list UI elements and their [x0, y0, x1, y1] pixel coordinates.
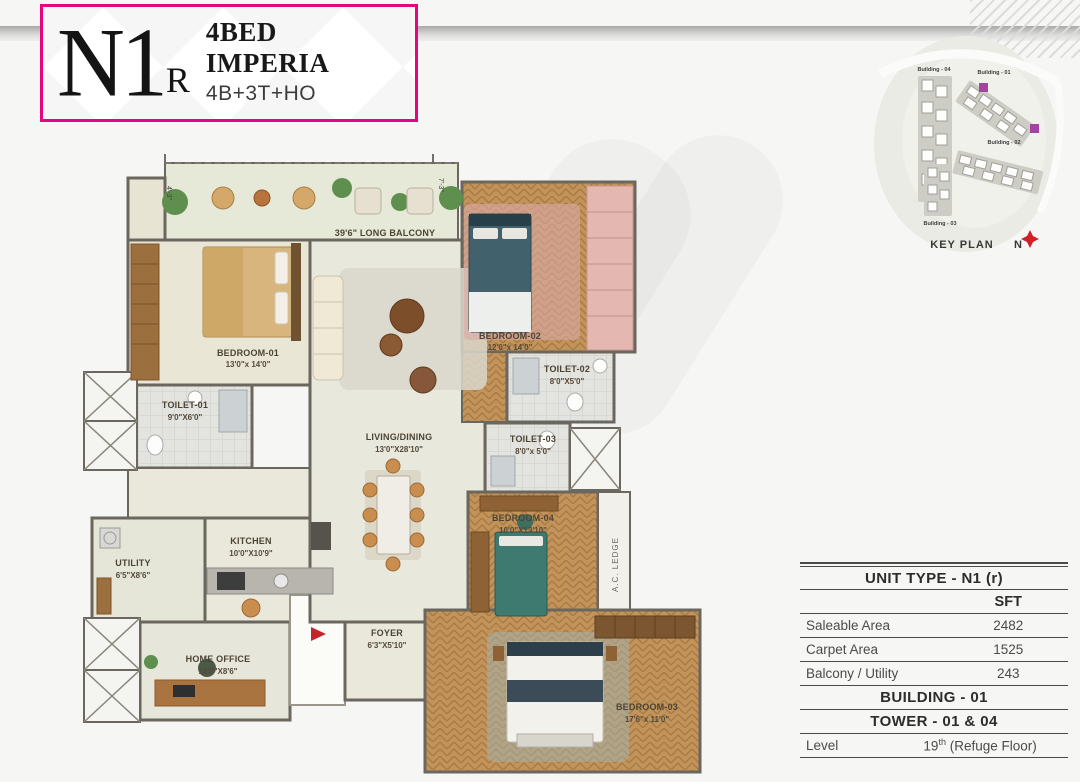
- plan-title: 4BED IMPERIA: [206, 17, 407, 79]
- passage: [128, 468, 310, 518]
- north-label: N: [1014, 239, 1023, 251]
- row-label: Saleable Area: [806, 618, 954, 633]
- toilet-02-label: TOILET-02: [544, 364, 590, 374]
- tower-header: TOWER - 01 & 04: [800, 710, 1068, 734]
- row-value: 2482: [954, 618, 1062, 633]
- north-compass-icon: [1021, 230, 1039, 248]
- room-bedroom01-closet: [128, 178, 165, 240]
- balcony-label: 39'6" LONG BALCONY: [335, 228, 436, 238]
- bedroom-02-size: 12'0"x 14'0": [488, 343, 533, 352]
- bedroom-02-furniture: [464, 186, 633, 350]
- table-row-saleable-area: Saleable Area 2482: [800, 614, 1068, 638]
- sft-header-row: SFT: [800, 590, 1068, 614]
- bedroom-04-label: BEDROOM-04: [492, 513, 554, 523]
- key-plan-building-02-label: Building - 02: [988, 140, 1021, 146]
- row-value: 243: [954, 666, 1062, 681]
- foyer-size: 6'3"X5'10": [368, 641, 407, 650]
- key-plan-building-03: [924, 164, 952, 216]
- page: N1 R 4BED IMPERIA 4B+3T+HO: [0, 0, 1080, 782]
- table-row-level: Level 19th (Refuge Floor): [800, 734, 1068, 758]
- key-plan-building-01-label: Building - 01: [978, 70, 1011, 76]
- bedroom-03-label: BEDROOM-03: [616, 702, 678, 712]
- kitchen-size: 10'0"X10'9": [229, 549, 273, 558]
- building-header: BUILDING - 01: [800, 686, 1068, 710]
- key-plan-building-03-label: Building - 03: [924, 221, 957, 227]
- foyer-label: FOYER: [371, 628, 403, 638]
- row-label: Carpet Area: [806, 642, 954, 657]
- toilet-01-label: TOILET-01: [162, 400, 208, 410]
- level-value: 19th (Refuge Floor): [898, 737, 1062, 754]
- home-office-label: HOME OFFICE: [186, 654, 251, 664]
- unit-code-suffix: R: [166, 59, 190, 101]
- bedroom-01-size: 13'0"x 14'0": [226, 360, 271, 369]
- utility-label: UTILITY: [115, 558, 150, 568]
- title-block: N1 R 4BED IMPERIA 4B+3T+HO: [40, 4, 418, 122]
- bedroom-04-size: 10'0"X13'10": [499, 526, 547, 535]
- bedroom-03-size: 17'6"x 11'0": [625, 715, 670, 724]
- spec-table: UNIT TYPE - N1 (r) SFT Saleable Area 248…: [800, 562, 1068, 758]
- table-row-balcony-utility: Balcony / Utility 243: [800, 662, 1068, 686]
- toilet-01-size: 9'0"X6'0": [168, 413, 203, 422]
- row-value: 1525: [954, 642, 1062, 657]
- bedroom-01-label: BEDROOM-01: [217, 348, 279, 358]
- unit-code-logo: N1: [57, 19, 164, 108]
- key-plan-building-04-label: Building - 04: [918, 67, 952, 73]
- utility-size: 6'5"X8'6": [116, 571, 151, 580]
- unit-type-header: UNIT TYPE - N1 (r): [800, 566, 1068, 590]
- key-plan-title: KEY PLAN: [930, 239, 993, 251]
- living-dining-size: 13'0"X28'10": [375, 445, 423, 454]
- home-office-size: 12'0"X8'6": [199, 667, 238, 676]
- key-plan-highlight-unit: [979, 83, 988, 92]
- kitchen-label: KITCHEN: [230, 536, 271, 546]
- dimension-mid: 7'-3": [437, 178, 444, 192]
- key-plan-highlight-unit: [1030, 124, 1039, 133]
- row-label: Level: [806, 738, 898, 753]
- sft-header: SFT: [954, 594, 1062, 610]
- key-plan: Building - 04 Building - 01 Building - 0…: [862, 22, 1074, 270]
- toilet-03-size: 8'0"x 5'0": [515, 447, 551, 456]
- table-row-carpet-area: Carpet Area 1525: [800, 638, 1068, 662]
- toilet-02-size: 8'0"X5'0": [550, 377, 585, 386]
- floor-plan: 39'6" LONG BALCONY BEDROOM-01 13'0"x 14'…: [55, 140, 705, 780]
- plan-subtitle: 4B+3T+HO: [206, 82, 407, 106]
- bedroom-02-label: BEDROOM-02: [479, 331, 541, 341]
- toilet-03-label: TOILET-03: [510, 434, 556, 444]
- living-dining-label: LIVING/DINING: [366, 432, 433, 442]
- ac-ledge-label: A.C. LEDGE: [611, 537, 620, 592]
- dimension-left: 4'-3": [165, 186, 172, 200]
- row-label: Balcony / Utility: [806, 666, 954, 681]
